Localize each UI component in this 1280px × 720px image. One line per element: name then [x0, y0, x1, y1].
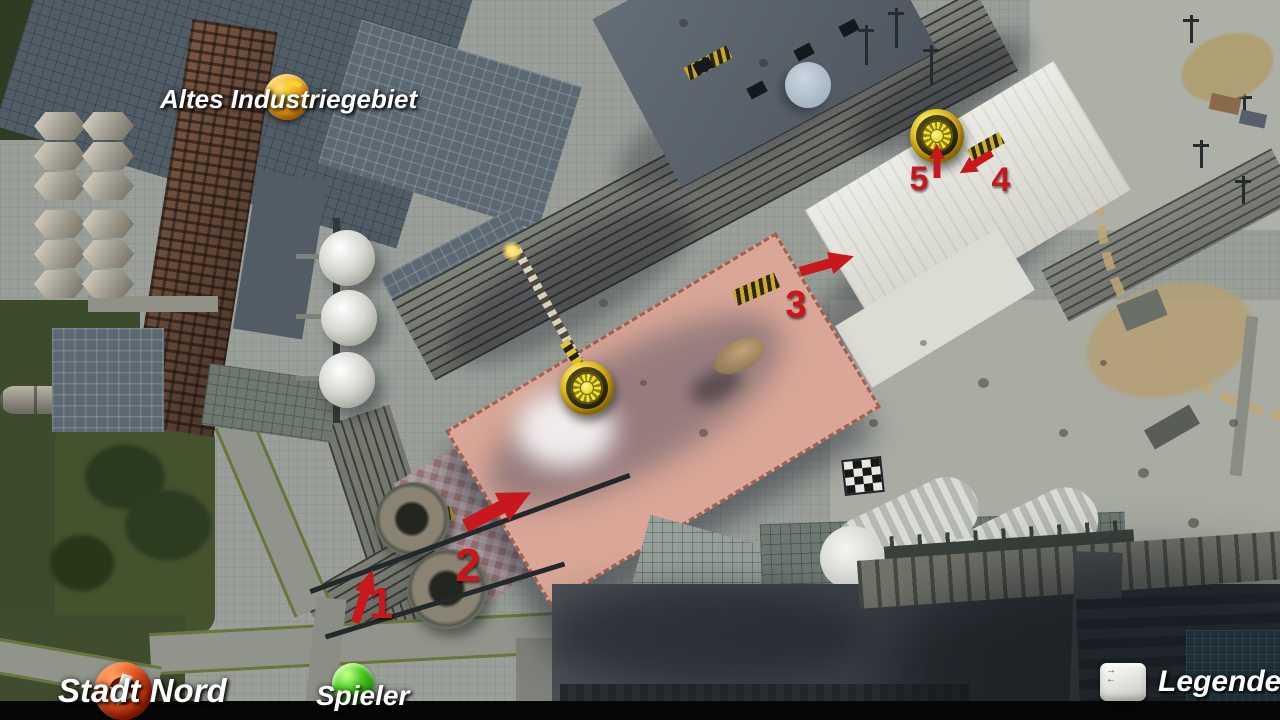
map-debris — [0, 0, 7, 6]
map-dome-tank — [319, 352, 375, 408]
route-number-3: 3 — [785, 286, 806, 324]
map-dome-tank — [319, 230, 375, 286]
route-number-4: 4 — [992, 163, 1011, 197]
tab-key-arrows: →← — [1106, 666, 1116, 684]
map-checker-marker — [841, 456, 885, 496]
wheel-hub — [580, 381, 594, 395]
route-number-5: 5 — [910, 162, 929, 196]
tab-key-icon: →← — [1100, 663, 1146, 701]
map-dome-tank — [321, 290, 377, 346]
map-building-glass-small — [52, 328, 164, 432]
player-label: Spieler — [316, 680, 409, 712]
map-shadow — [545, 585, 865, 685]
wheel-collectible-icon — [560, 361, 614, 415]
wheel-hub — [930, 129, 944, 143]
legend-label: Legende — [1158, 665, 1280, 699]
map-pole — [865, 25, 868, 65]
map-tree — [125, 490, 211, 560]
route-number-2: 2 — [455, 542, 481, 588]
map-pole — [930, 45, 933, 85]
map-pole — [895, 8, 898, 48]
map-tree — [50, 535, 114, 591]
minimap-screen: 1 2 3 4 5 Altes Industriegebiet Stadt No… — [0, 0, 1280, 720]
region-label: Altes Industriegebiet — [160, 84, 417, 115]
map-roof-circle — [785, 62, 831, 108]
map-crane-light — [502, 241, 522, 261]
legend-button[interactable]: →← Legende — [1100, 663, 1280, 701]
route-number-1: 1 — [369, 582, 393, 626]
exit-label: Stadt Nord — [58, 672, 227, 710]
map-walkway — [88, 296, 218, 312]
